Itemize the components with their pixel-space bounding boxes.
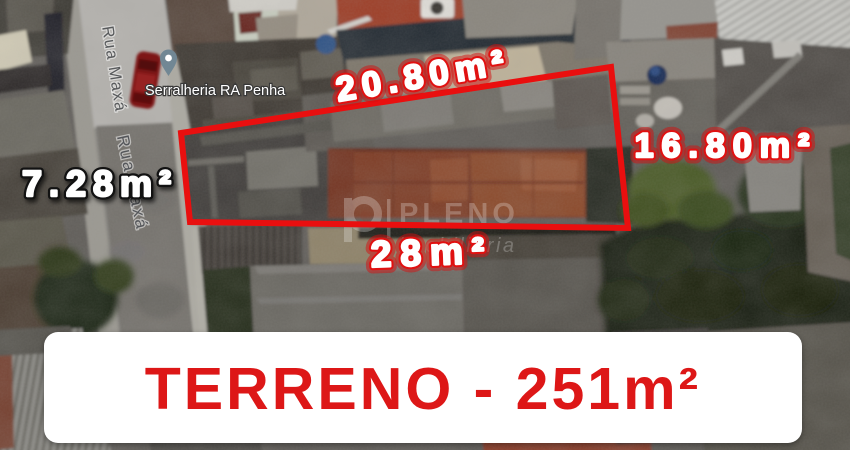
svg-text:16.80m²: 16.80m² [635,127,818,165]
svg-text:28m²: 28m² [370,230,494,275]
svg-text:Serralheria RA Penha: Serralheria RA Penha [145,83,286,99]
svg-text:7.28m²: 7.28m² [22,163,178,204]
svg-text:TERRENO - 251m²: TERRENO - 251m² [145,356,701,422]
